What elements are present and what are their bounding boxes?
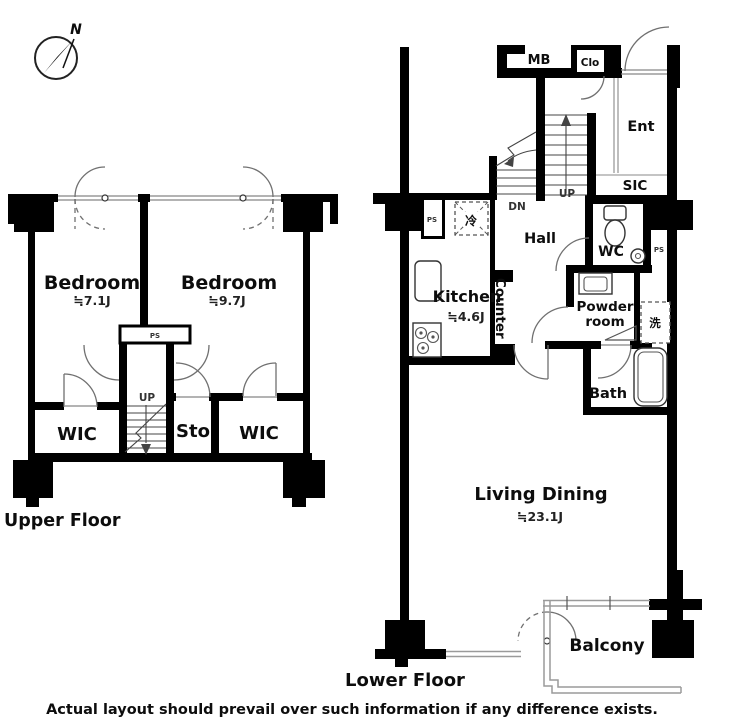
upper-floor-title: Upper Floor	[4, 511, 121, 531]
window-pivot	[102, 195, 108, 201]
lower-floor-plan: UP DN 冷	[345, 27, 702, 693]
bath-label: Bath	[589, 386, 627, 402]
powder-room-label-1: Powder	[576, 299, 633, 315]
wic-left-label: WIC	[57, 424, 97, 445]
upper-floor-plan: N	[4, 22, 338, 531]
powder-room-label-2: room	[585, 314, 624, 330]
ps-right-label: PS	[654, 246, 664, 254]
upper-ps-duct: PS	[120, 326, 190, 343]
powder-sink-icon	[579, 273, 612, 294]
upper-staircase: UP	[125, 392, 166, 455]
stove-icon	[413, 323, 441, 357]
washer-icon: 洗	[641, 302, 670, 343]
upper-ps-label: PS	[150, 332, 160, 340]
counter-label: Counter	[492, 278, 508, 339]
kitchen-label: Kitchen	[433, 287, 502, 306]
disclaimer-text: Actual layout should prevail over such i…	[46, 702, 658, 718]
balcony-door-pivot	[544, 638, 550, 644]
bedroom2-size: ≒9.7J	[208, 293, 245, 308]
window-pivot	[240, 195, 246, 201]
clo-label: Clo	[581, 57, 600, 69]
balcony-label: Balcony	[569, 636, 644, 656]
upper-floor-walls	[8, 194, 338, 507]
hall-label: Hall	[524, 231, 556, 247]
washer-label: 洗	[649, 316, 661, 330]
ent-label: Ent	[627, 119, 654, 135]
kitchen-size: ≒4.6J	[447, 309, 484, 324]
compass-icon: N	[35, 22, 82, 79]
sto-label: Sto	[176, 421, 210, 442]
wc-label: WC	[598, 244, 624, 260]
floor-plan-page: N	[0, 0, 746, 724]
compass-north-label: N	[70, 22, 82, 38]
upper-up-label: UP	[139, 392, 156, 404]
bedroom2-label: Bedroom	[181, 272, 277, 294]
bedroom1-label: Bedroom	[44, 272, 140, 294]
ps-left-label: PS	[427, 216, 437, 224]
lower-dn-label: DN	[508, 201, 526, 213]
mb-label: MB	[528, 53, 551, 68]
bedroom1-size: ≒7.1J	[73, 293, 110, 308]
lower-up-label: UP	[559, 188, 576, 200]
wic-right-label: WIC	[239, 423, 279, 444]
lower-floor-title: Lower Floor	[345, 670, 465, 691]
toilet-paper-holder-icon	[631, 249, 645, 263]
fridge-label: 冷	[465, 213, 477, 228]
living-dining-label: Living Dining	[474, 484, 607, 505]
sic-label: SIC	[623, 178, 648, 194]
upper-windows	[58, 167, 281, 229]
fridge-icon: 冷	[455, 202, 488, 235]
bathtub-icon	[634, 348, 667, 406]
toilet-icon	[604, 206, 626, 246]
living-dining-size: ≒23.1J	[517, 509, 563, 524]
